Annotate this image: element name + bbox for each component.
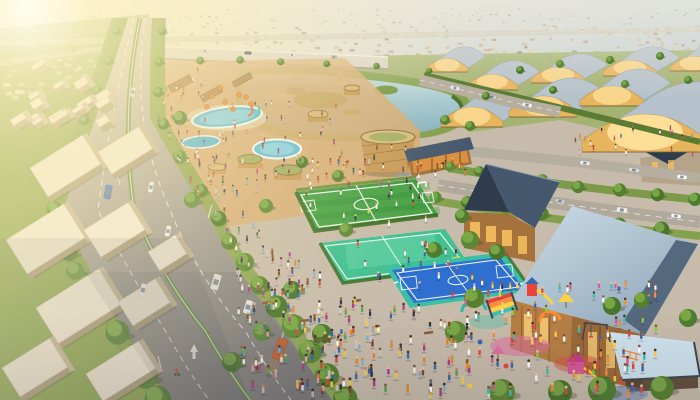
person-head: [299, 287, 301, 289]
person-shadow: [211, 166, 214, 167]
person-head: [307, 344, 310, 347]
person: [300, 134, 301, 137]
person: [238, 229, 240, 233]
person: [289, 252, 291, 256]
person: [340, 341, 342, 346]
person-shadow: [178, 163, 181, 164]
person: [214, 159, 216, 163]
person-shadow: [256, 267, 260, 268]
person-head: [342, 378, 345, 381]
person-head: [271, 100, 272, 101]
person: [654, 293, 656, 298]
person-head: [473, 283, 475, 285]
person: [572, 357, 574, 363]
person-head: [340, 189, 342, 191]
person-head: [330, 379, 333, 382]
person-head: [169, 132, 171, 134]
person-head: [336, 338, 339, 341]
person-shadow: [509, 369, 514, 371]
person-shadow: [180, 143, 183, 144]
person-head: [348, 315, 351, 318]
person-head: [205, 80, 206, 81]
person-head: [373, 378, 376, 381]
person-head: [266, 249, 268, 251]
person-head: [417, 164, 419, 166]
person-shadow: [467, 374, 472, 376]
person-head: [266, 115, 268, 117]
person-head: [176, 123, 178, 125]
person-head: [578, 149, 580, 151]
person-shadow: [320, 317, 325, 318]
person: [355, 374, 358, 380]
person-shadow: [640, 373, 645, 375]
car-glass: [674, 214, 678, 217]
person-head: [320, 360, 323, 363]
person: [592, 369, 595, 375]
person-head: [336, 382, 339, 385]
person-shadow: [654, 333, 659, 334]
person-shadow: [189, 182, 192, 183]
person-shadow: [338, 314, 342, 315]
person-head: [337, 336, 340, 339]
person-shadow: [354, 349, 359, 350]
person-shadow: [241, 217, 245, 218]
person-shadow: [480, 286, 484, 287]
tree-highlight: [105, 57, 111, 63]
person-head: [246, 127, 248, 129]
person-shadow: [627, 338, 632, 339]
person-head: [625, 149, 627, 151]
person-shadow: [354, 365, 359, 367]
person-shadow: [609, 290, 613, 291]
person-shadow: [300, 330, 305, 331]
person-shadow: [170, 119, 173, 120]
person-head: [455, 367, 458, 370]
person-head: [417, 304, 420, 307]
person-shadow: [464, 305, 468, 306]
person-shadow: [329, 164, 332, 165]
person-head: [222, 129, 224, 131]
person-shadow: [256, 174, 259, 175]
person-shadow: [364, 327, 369, 328]
person: [614, 137, 615, 140]
person: [320, 363, 322, 369]
person-head: [572, 370, 575, 373]
person-shadow: [222, 143, 225, 144]
person: [535, 375, 538, 381]
person: [478, 350, 480, 355]
person-shadow: [185, 126, 188, 127]
person: [648, 283, 650, 288]
person-head: [186, 128, 188, 130]
person-shadow: [390, 195, 393, 196]
person: [447, 262, 449, 267]
person: [412, 202, 414, 206]
person-head: [454, 340, 457, 343]
person-shadow: [286, 310, 290, 311]
person: [361, 307, 363, 312]
person: [353, 169, 355, 173]
person: [281, 291, 283, 296]
person-head: [366, 333, 369, 336]
person-head: [554, 329, 557, 332]
person: [575, 138, 576, 141]
person-head: [499, 290, 501, 292]
person: [242, 212, 244, 216]
person: [347, 179, 349, 183]
person-head: [531, 322, 534, 325]
person-head: [393, 305, 396, 308]
person-shadow: [453, 349, 458, 350]
person: [388, 194, 390, 198]
person: [624, 366, 626, 372]
person-head: [326, 376, 329, 379]
person-head: [624, 363, 627, 366]
person: [336, 385, 339, 391]
person-shadow: [255, 185, 258, 186]
person-head: [365, 318, 368, 321]
person: [349, 380, 352, 386]
person: [226, 228, 228, 232]
person-shadow: [613, 141, 616, 142]
person: [413, 367, 416, 373]
person-head: [407, 160, 409, 162]
person: [631, 385, 634, 391]
person-head: [232, 131, 234, 133]
person: [343, 351, 345, 356]
person-shadow: [367, 375, 372, 377]
person: [275, 302, 277, 307]
person-head: [299, 132, 301, 134]
person-shadow: [420, 377, 425, 379]
person: [388, 183, 390, 187]
person-shadow: [378, 357, 383, 359]
person-shadow: [293, 267, 297, 268]
person-head: [271, 248, 273, 250]
tree-highlight: [557, 60, 562, 65]
person: [372, 328, 374, 333]
person-head: [455, 247, 457, 249]
person-shadow: [624, 155, 627, 156]
person: [197, 185, 199, 189]
car-glass: [131, 90, 135, 94]
person-shadow: [408, 344, 413, 345]
person-head: [450, 335, 453, 338]
person-shadow: [176, 161, 179, 162]
person-head: [598, 281, 600, 283]
person-shadow: [446, 366, 451, 368]
person-head: [578, 325, 581, 328]
person-shadow: [477, 356, 482, 358]
person-shadow: [277, 154, 280, 155]
person: [264, 139, 265, 142]
person: [236, 191, 238, 195]
person-shadow: [351, 309, 355, 310]
person-shadow: [198, 162, 201, 163]
person-shadow: [407, 166, 410, 167]
person-shadow: [428, 328, 433, 329]
person: [481, 281, 483, 286]
person-head: [317, 306, 320, 309]
person-shadow: [335, 392, 340, 394]
person: [425, 243, 427, 247]
person: [475, 313, 477, 318]
person-shadow: [371, 335, 376, 336]
person-shadow: [512, 340, 517, 341]
person: [566, 287, 568, 292]
person-shadow: [624, 288, 628, 289]
person-shadow: [597, 289, 601, 290]
person: [368, 161, 370, 165]
person: [171, 116, 172, 119]
person-shadow: [265, 107, 268, 108]
person-head: [313, 269, 315, 271]
person-head: [607, 330, 610, 333]
person-shadow: [325, 386, 330, 388]
person-shadow: [335, 108, 338, 109]
person: [586, 369, 589, 375]
person: [624, 300, 626, 305]
person-shadow: [449, 344, 454, 345]
tree-highlight: [614, 184, 622, 192]
person-shadow: [202, 99, 205, 100]
person-shadow: [598, 358, 603, 360]
person: [512, 310, 514, 315]
tree-highlight: [456, 210, 465, 219]
person-head: [171, 106, 173, 108]
person-shadow: [614, 325, 619, 326]
warm-window: [486, 226, 496, 242]
person-shadow: [420, 246, 424, 247]
person-head: [615, 316, 618, 319]
person: [271, 251, 273, 255]
person-shadow: [402, 172, 405, 173]
person-head: [648, 280, 650, 282]
person-head: [586, 366, 589, 369]
person-shadow: [240, 263, 244, 264]
person: [391, 145, 393, 148]
person-shadow: [510, 316, 515, 317]
person-head: [446, 337, 449, 340]
person-head: [632, 361, 635, 364]
person-head: [296, 154, 298, 156]
person: [307, 280, 309, 285]
person: [262, 144, 264, 147]
person-shadow: [344, 316, 349, 317]
person: [466, 318, 468, 323]
person: [343, 381, 346, 387]
person: [339, 384, 342, 390]
person-shadow: [378, 281, 382, 282]
person-head: [257, 283, 259, 285]
person-head: [280, 257, 282, 259]
person-head: [536, 350, 539, 353]
person: [478, 314, 480, 319]
person-shadow: [319, 348, 324, 349]
person: [257, 261, 259, 266]
person-head: [223, 205, 225, 207]
person: [551, 385, 554, 391]
person-shadow: [423, 257, 427, 258]
person-head: [527, 359, 530, 362]
orange-umbrella: [244, 95, 249, 100]
person-shadow: [534, 382, 539, 384]
person-head: [343, 164, 345, 166]
person: [584, 137, 585, 140]
person: [306, 192, 308, 196]
person-head: [202, 94, 203, 95]
person: [440, 321, 442, 326]
person: [626, 358, 628, 364]
person: [202, 95, 203, 98]
person-shadow: [474, 319, 479, 320]
person: [349, 388, 352, 394]
person: [391, 191, 393, 195]
person: [418, 306, 420, 311]
tree-highlight: [517, 66, 522, 71]
person: [536, 352, 538, 357]
person-head: [572, 354, 575, 357]
person-shadow: [316, 167, 319, 168]
person-shadow: [231, 136, 234, 137]
person: [471, 275, 473, 280]
person: [325, 315, 327, 320]
person-shadow: [438, 398, 443, 400]
person: [210, 179, 212, 183]
person: [336, 341, 338, 346]
person-shadow: [281, 319, 286, 320]
person-head: [340, 297, 342, 299]
person-head: [197, 67, 198, 68]
person: [314, 337, 316, 342]
person: [594, 363, 596, 369]
person: [455, 249, 457, 253]
person-head: [262, 288, 264, 290]
person-shadow: [193, 159, 196, 160]
person-shadow: [526, 317, 531, 318]
tree-highlight: [652, 377, 667, 392]
person-shadow: [642, 361, 647, 363]
person: [275, 280, 277, 285]
person: [643, 355, 645, 361]
person-head: [223, 187, 225, 189]
person: [317, 163, 319, 167]
car-glass: [333, 56, 335, 58]
person: [185, 147, 187, 150]
person-shadow: [397, 357, 402, 359]
person-head: [620, 133, 622, 135]
person-shadow: [508, 290, 512, 291]
person-head: [511, 308, 514, 311]
person-head: [429, 319, 432, 322]
person: [294, 262, 296, 267]
person-head: [301, 322, 304, 325]
person: [461, 164, 463, 168]
person-shadow: [346, 184, 349, 185]
person-shadow: [639, 340, 644, 341]
scene-canvas: [0, 0, 700, 400]
person: [534, 303, 536, 308]
person-head: [197, 183, 199, 185]
person: [262, 291, 264, 296]
car-glass: [204, 50, 206, 52]
person: [330, 381, 333, 387]
person-shadow: [550, 392, 555, 394]
person-shadow: [647, 302, 651, 303]
person: [598, 283, 600, 288]
person: [448, 321, 450, 326]
person: [225, 137, 226, 140]
person-head: [641, 363, 644, 366]
person-shadow: [623, 372, 628, 374]
person-shadow: [574, 142, 577, 143]
tree-highlight: [689, 193, 697, 201]
person-head: [311, 162, 313, 164]
person: [579, 135, 580, 138]
person-shadow: [234, 129, 237, 130]
person-head: [275, 170, 277, 172]
person: [417, 165, 419, 169]
person-head: [215, 188, 217, 190]
person-shadow: [389, 349, 394, 350]
person-head: [402, 166, 404, 168]
person-shadow: [320, 352, 325, 354]
person: [593, 147, 595, 150]
person: [289, 281, 291, 286]
person-head: [368, 366, 371, 369]
person-shadow: [526, 369, 531, 371]
orange-umbrella: [218, 86, 223, 91]
person: [682, 136, 683, 139]
person-head: [602, 295, 604, 297]
person-head: [395, 370, 398, 373]
person-head: [466, 315, 469, 318]
person: [429, 386, 432, 392]
person-head: [288, 278, 290, 280]
person-head: [610, 282, 612, 284]
person-shadow: [404, 151, 407, 152]
person: [407, 162, 409, 166]
person-shadow: [412, 374, 417, 376]
car-glass: [291, 54, 293, 56]
person: [620, 134, 621, 137]
person: [298, 262, 300, 267]
person-shadow: [424, 248, 428, 249]
person: [257, 285, 259, 290]
person: [287, 304, 289, 309]
person-shadow: [212, 176, 215, 177]
person-shadow: [339, 335, 344, 336]
person-shadow: [447, 328, 452, 329]
person: [446, 340, 448, 345]
person: [491, 358, 493, 364]
person-shadow: [197, 95, 200, 96]
person: [438, 274, 440, 279]
person-shadow: [691, 156, 694, 157]
person-head: [471, 273, 473, 275]
person-shadow: [358, 175, 361, 176]
person: [671, 148, 673, 151]
person-shadow: [619, 386, 624, 388]
person-head: [246, 235, 248, 237]
person: [451, 358, 453, 364]
person-shadow: [254, 105, 257, 106]
person: [282, 164, 284, 168]
person: [376, 205, 378, 209]
person-shadow: [406, 360, 411, 362]
person-head: [364, 260, 366, 262]
orange-umbrella: [210, 94, 215, 99]
